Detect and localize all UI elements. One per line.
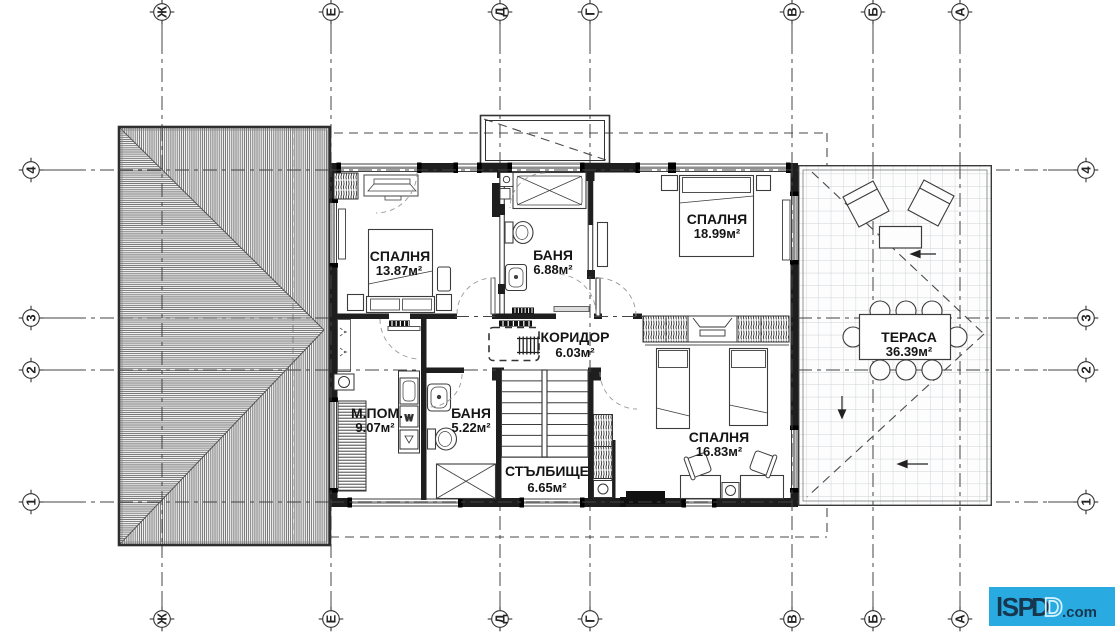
svg-text:D: D bbox=[1044, 592, 1063, 622]
svg-text:СТЪЛБИЩЕ: СТЪЛБИЩЕ bbox=[505, 463, 589, 479]
svg-text:А: А bbox=[953, 614, 968, 624]
svg-text:А: А bbox=[953, 7, 968, 17]
svg-text:Ж: Ж bbox=[155, 613, 170, 626]
svg-text:СПАЛНЯ: СПАЛНЯ bbox=[370, 248, 430, 264]
svg-text:5.22м²: 5.22м² bbox=[451, 420, 491, 435]
svg-text:6.88м²: 6.88м² bbox=[533, 262, 573, 277]
svg-text:9.07м²: 9.07м² bbox=[355, 420, 395, 435]
svg-text:6.03м²: 6.03м² bbox=[555, 345, 595, 360]
svg-text:13.87м²: 13.87м² bbox=[376, 263, 423, 278]
svg-text:18.99м²: 18.99м² bbox=[694, 226, 741, 241]
svg-text:2: 2 bbox=[1079, 366, 1094, 373]
svg-text:КОРИДОР: КОРИДОР bbox=[540, 329, 609, 345]
svg-text:1: 1 bbox=[24, 498, 39, 505]
svg-text:ТЕРАСА: ТЕРАСА bbox=[881, 329, 937, 345]
svg-text:СПАЛНЯ: СПАЛНЯ bbox=[687, 211, 747, 227]
svg-text:В: В bbox=[785, 614, 800, 623]
svg-text:Г: Г bbox=[583, 615, 598, 623]
svg-text:2: 2 bbox=[24, 366, 39, 373]
svg-text:Е: Е bbox=[324, 7, 339, 16]
svg-text:4: 4 bbox=[1079, 166, 1094, 174]
svg-text:Б: Б bbox=[866, 7, 881, 16]
svg-text:36.39м²: 36.39м² bbox=[886, 344, 933, 359]
svg-text:Г: Г bbox=[583, 8, 598, 16]
svg-text:Д: Д bbox=[493, 614, 508, 624]
svg-text:3: 3 bbox=[24, 314, 39, 321]
svg-text:1: 1 bbox=[1079, 498, 1094, 505]
svg-text:БАНЯ: БАНЯ bbox=[451, 405, 491, 421]
svg-text:Б: Б bbox=[866, 614, 881, 623]
svg-text:СПАЛНЯ: СПАЛНЯ bbox=[689, 429, 749, 445]
svg-text:В: В bbox=[785, 7, 800, 16]
svg-text:БАНЯ: БАНЯ bbox=[533, 247, 573, 263]
svg-text:16.83м²: 16.83м² bbox=[696, 444, 743, 459]
svg-text:3: 3 bbox=[1079, 314, 1094, 321]
svg-text:6.65м²: 6.65м² bbox=[527, 480, 567, 495]
svg-text:М.ПОМ.: М.ПОМ. bbox=[351, 405, 403, 421]
svg-text:Ж: Ж bbox=[155, 6, 170, 19]
svg-text:.com: .com bbox=[1062, 604, 1097, 621]
svg-text:W: W bbox=[405, 413, 414, 423]
svg-text:4: 4 bbox=[24, 166, 39, 174]
svg-text:lSP: lSP bbox=[996, 592, 1035, 622]
svg-text:Д: Д bbox=[493, 7, 508, 17]
svg-text:Е: Е bbox=[324, 614, 339, 623]
